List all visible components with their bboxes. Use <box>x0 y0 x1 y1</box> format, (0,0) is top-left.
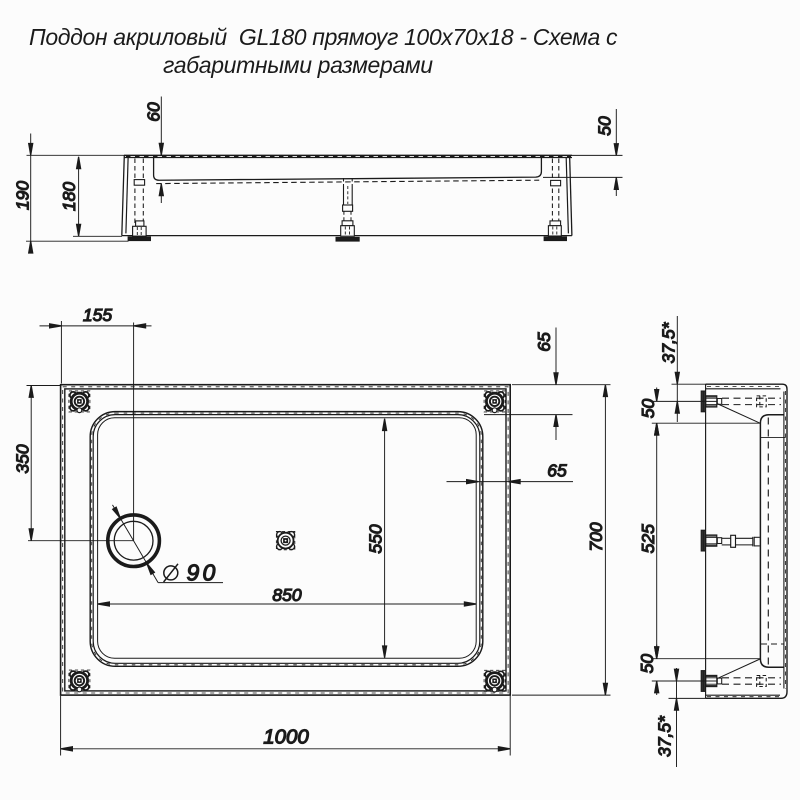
svg-text:155: 155 <box>83 305 112 325</box>
svg-text:190: 190 <box>13 181 33 210</box>
svg-text:60: 60 <box>144 102 164 122</box>
svg-text:65: 65 <box>534 332 554 352</box>
svg-text:1000: 1000 <box>263 726 309 749</box>
svg-text:350: 350 <box>13 444 33 473</box>
svg-text:550: 550 <box>365 524 385 553</box>
svg-text:525: 525 <box>638 524 658 553</box>
svg-text:65: 65 <box>547 461 567 481</box>
svg-text:37,5*: 37,5* <box>659 321 679 363</box>
svg-text:90: 90 <box>187 560 219 586</box>
svg-text:180: 180 <box>59 182 79 211</box>
svg-text:50: 50 <box>638 399 658 419</box>
svg-text:50: 50 <box>595 116 615 136</box>
svg-text:850: 850 <box>272 585 301 605</box>
svg-text:37,5*: 37,5* <box>655 715 675 757</box>
svg-text:Поддон акриловый GL180 прямоу: Поддон акриловый GL180 прямоуг 100х70х18… <box>29 24 618 50</box>
svg-text:50: 50 <box>637 654 657 674</box>
svg-text:габаритными размерами: габаритными размерами <box>163 52 433 78</box>
svg-text:700: 700 <box>586 522 606 551</box>
